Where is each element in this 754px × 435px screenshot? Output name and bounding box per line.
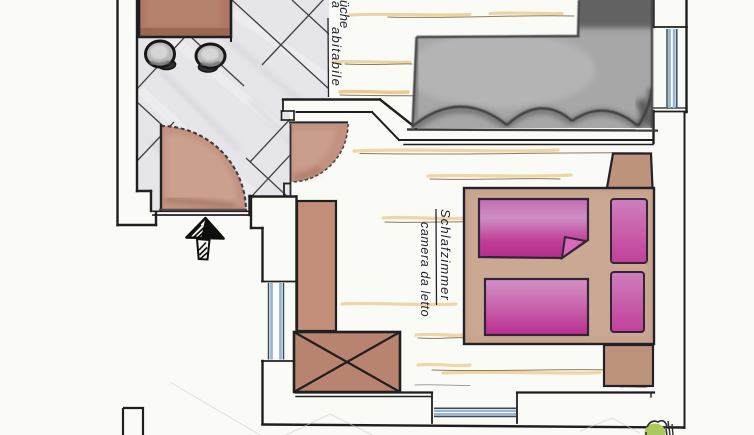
svg-text:abitabile: abitabile: [329, 27, 344, 87]
svg-text:camera da letto: camera da letto: [418, 222, 432, 317]
svg-text:Schlafzimmer: Schlafzimmer: [438, 209, 453, 301]
svg-text:a: a: [329, 1, 343, 8]
